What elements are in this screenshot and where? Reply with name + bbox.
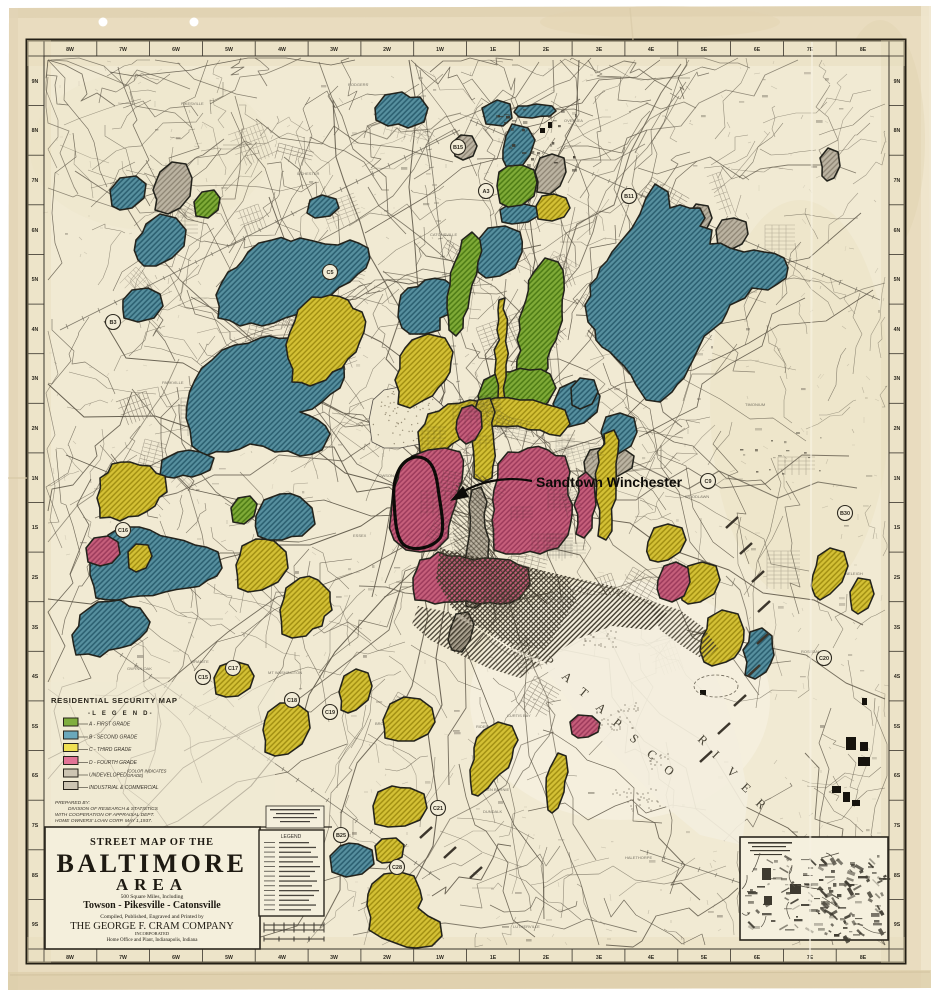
svg-text:2N: 2N (894, 426, 901, 432)
svg-text:C - THIRD GRADE: C - THIRD GRADE (89, 747, 132, 753)
svg-text:5N: 5N (894, 277, 901, 283)
svg-text:6S: 6S (894, 773, 901, 779)
svg-text:C16: C16 (118, 528, 128, 534)
svg-text:1N: 1N (32, 476, 39, 482)
svg-text:Sandtown Winchester: Sandtown Winchester (536, 474, 683, 490)
svg-text:CURTIS BAY: CURTIS BAY (507, 713, 531, 718)
svg-text:PREPARED BY:: PREPARED BY: (55, 800, 91, 806)
svg-text:Towson - Pikesville - Catonsvi: Towson - Pikesville - Catonsville (83, 900, 221, 911)
svg-text:8W: 8W (66, 955, 74, 961)
svg-text:3S: 3S (894, 625, 901, 631)
svg-text:WITH COOPERATION OF APPRAISAL: WITH COOPERATION OF APPRAISAL DEPT. (55, 812, 155, 818)
svg-text:2E: 2E (543, 955, 550, 961)
svg-text:HALETHORPE: HALETHORPE (625, 855, 652, 860)
svg-text:MT WASHINGTON: MT WASHINGTON (268, 670, 302, 675)
svg-text:DIVISION OF RESEARCH & STATIST: DIVISION OF RESEARCH & STATISTICS (68, 806, 159, 812)
svg-text:2W: 2W (383, 955, 391, 961)
svg-text:7N: 7N (32, 178, 39, 184)
svg-text:3S: 3S (32, 625, 39, 631)
svg-text:4W: 4W (278, 47, 286, 53)
svg-text:C18: C18 (287, 698, 297, 704)
svg-text:5S: 5S (894, 724, 901, 730)
svg-text:C15: C15 (198, 675, 208, 681)
svg-text:Home Office and Plant, Indian: Home Office and Plant, Indianapolis, Ind… (107, 938, 199, 943)
svg-text:9N: 9N (894, 79, 901, 85)
svg-text:INCORPORATED: INCORPORATED (135, 931, 170, 936)
svg-text:3N: 3N (894, 376, 901, 382)
svg-text:C9: C9 (704, 479, 711, 485)
svg-text:3W: 3W (330, 955, 338, 961)
svg-text:6S: 6S (32, 773, 39, 779)
svg-text:C17: C17 (228, 666, 238, 672)
svg-text:B25: B25 (336, 833, 346, 839)
svg-text:RESIDENTIAL SECURITY MAP: RESIDENTIAL SECURITY MAP (51, 696, 178, 705)
svg-text:5E: 5E (701, 47, 708, 53)
svg-text:5E: 5E (701, 955, 708, 961)
svg-text:C19: C19 (325, 710, 335, 716)
svg-text:CATONSVILLE: CATONSVILLE (430, 232, 458, 237)
svg-text:4E: 4E (648, 955, 655, 961)
svg-text:2E: 2E (543, 47, 550, 53)
svg-text:2N: 2N (32, 426, 39, 432)
svg-text:8E: 8E (860, 47, 867, 53)
svg-text:5S: 5S (32, 724, 39, 730)
svg-text:A3: A3 (482, 189, 489, 195)
svg-text:D - FOURTH GRADE: D - FOURTH GRADE (89, 760, 138, 766)
svg-text:7S: 7S (32, 823, 39, 829)
svg-text:7S: 7S (894, 823, 901, 829)
svg-text:TIMONIUM: TIMONIUM (745, 402, 765, 407)
svg-text:UNDEVELOPED: UNDEVELOPED (89, 773, 127, 779)
svg-text:4N: 4N (894, 327, 901, 333)
svg-text:GRADE): GRADE) (127, 773, 144, 778)
svg-text:Compiled, Published, Engraved: Compiled, Published, Engraved and Printe… (100, 914, 204, 920)
svg-text:6N: 6N (894, 228, 901, 234)
svg-text:5W: 5W (225, 955, 233, 961)
svg-text:STREET MAP OF THE: STREET MAP OF THE (90, 837, 214, 848)
svg-text:RODGERS: RODGERS (348, 82, 369, 87)
svg-text:A - FIRST GRADE: A - FIRST GRADE (88, 722, 131, 728)
svg-text:2S: 2S (894, 575, 901, 581)
svg-text:B30: B30 (840, 511, 850, 517)
svg-text:WOODLAWN: WOODLAWN (685, 494, 709, 499)
svg-text:9S: 9S (32, 922, 39, 928)
svg-text:2S: 2S (32, 575, 39, 581)
svg-text:1E: 1E (490, 47, 497, 53)
svg-text:1S: 1S (894, 525, 901, 531)
svg-text:LEGEND: LEGEND (281, 834, 302, 840)
svg-text:3W: 3W (330, 47, 338, 53)
svg-text:7N: 7N (894, 178, 901, 184)
svg-text:4N: 4N (32, 327, 39, 333)
svg-text:BALTIMORE: BALTIMORE (57, 849, 248, 878)
svg-text:4E: 4E (648, 47, 655, 53)
svg-text:5N: 5N (32, 277, 39, 283)
svg-text:6W: 6W (172, 47, 180, 53)
svg-text:OVERLEA: OVERLEA (564, 118, 583, 123)
svg-text:ILCHESTER: ILCHESTER (297, 171, 320, 176)
svg-text:TOWSON: TOWSON (376, 473, 394, 478)
svg-text:GWYNN OAK: GWYNN OAK (127, 666, 152, 671)
svg-text:4S: 4S (894, 674, 901, 680)
svg-text:C5: C5 (326, 270, 333, 276)
svg-text:-L E G E N D-: -L E G E N D- (88, 711, 154, 717)
svg-text:8E: 8E (860, 955, 867, 961)
svg-text:7W: 7W (119, 955, 127, 961)
svg-text:9N: 9N (32, 79, 39, 85)
svg-text:B11: B11 (624, 194, 634, 200)
svg-text:B - SECOND GRADE: B - SECOND GRADE (89, 735, 138, 741)
svg-text:ESSEX: ESSEX (353, 533, 367, 538)
svg-text:4S: 4S (32, 674, 39, 680)
svg-text:7W: 7W (119, 47, 127, 53)
svg-text:AREA: AREA (116, 875, 188, 894)
svg-text:C28: C28 (392, 865, 402, 871)
svg-text:INDUSTRIAL & COMMERCIAL: INDUSTRIAL & COMMERCIAL (89, 785, 159, 791)
svg-text:8W: 8W (66, 47, 74, 53)
svg-text:5W: 5W (225, 47, 233, 53)
svg-text:2W: 2W (383, 47, 391, 53)
svg-text:C20: C20 (819, 656, 829, 662)
svg-text:6E: 6E (754, 955, 761, 961)
svg-text:PARKVILLE: PARKVILLE (162, 380, 184, 385)
svg-text:B15: B15 (453, 145, 463, 151)
svg-text:8N: 8N (894, 128, 901, 134)
svg-text:1S: 1S (32, 525, 39, 531)
svg-text:C21: C21 (433, 806, 443, 812)
svg-text:1W: 1W (436, 955, 444, 961)
svg-text:DUNDALK: DUNDALK (483, 809, 502, 814)
svg-text:9S: 9S (894, 922, 901, 928)
svg-text:PIKESVILLE: PIKESVILLE (181, 101, 204, 106)
svg-text:3E: 3E (596, 47, 603, 53)
svg-text:1N: 1N (894, 476, 901, 482)
svg-text:B3: B3 (109, 320, 116, 326)
svg-text:6W: 6W (172, 955, 180, 961)
svg-text:8N: 8N (32, 128, 39, 134)
svg-text:GRANITE: GRANITE (191, 659, 209, 664)
svg-text:3E: 3E (596, 955, 603, 961)
svg-text:1E: 1E (490, 955, 497, 961)
svg-text:LUTHERVILLE: LUTHERVILLE (513, 924, 540, 929)
svg-text:6E: 6E (754, 47, 761, 53)
svg-text:8S: 8S (32, 873, 39, 879)
svg-text:4W: 4W (278, 955, 286, 961)
svg-text:3N: 3N (32, 376, 39, 382)
svg-text:6N: 6N (32, 228, 39, 234)
svg-text:8S: 8S (894, 873, 901, 879)
svg-text:1W: 1W (436, 47, 444, 53)
svg-text:HOME OWNERS' LOAN CORP. MAY 1,: HOME OWNERS' LOAN CORP. MAY 1,1937. (55, 818, 152, 824)
